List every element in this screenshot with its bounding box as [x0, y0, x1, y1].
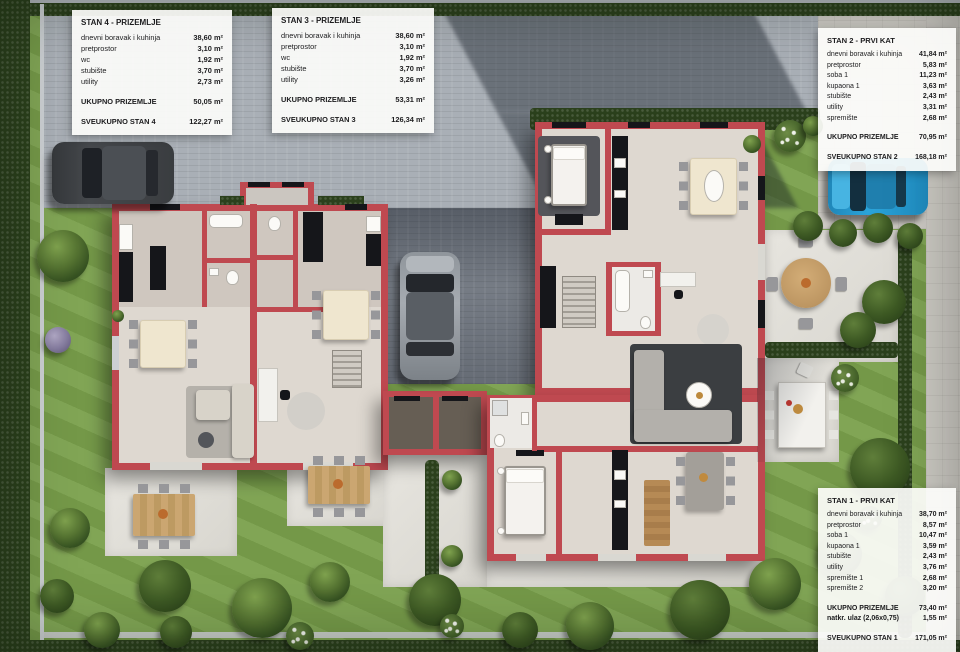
- fruit-bowl: [333, 479, 343, 489]
- row-label: wc: [81, 54, 90, 65]
- kitchen-counter: [119, 252, 133, 302]
- hedge-left: [0, 0, 30, 652]
- stairs: [562, 276, 596, 328]
- chair: [799, 318, 813, 329]
- row-label: stubište: [81, 65, 106, 76]
- decor-bowl: [696, 392, 703, 399]
- row-spacer: [81, 87, 223, 96]
- row-value: 3,70 m²: [400, 63, 425, 74]
- panel-title: STAN 3 - PRIZEMLJE: [281, 16, 425, 25]
- dining-table-stan3: [323, 290, 369, 340]
- toilet: [494, 434, 505, 447]
- fruit-bowl: [158, 509, 168, 519]
- row-label: stubište: [827, 552, 851, 563]
- row-spacer: [827, 595, 947, 604]
- chair: [836, 277, 847, 291]
- row-label: UKUPNO PRIZEMLJE: [281, 94, 357, 105]
- desk-chair: [674, 290, 683, 299]
- fence-line: [40, 4, 44, 652]
- window-lintel: [345, 204, 367, 210]
- panel-rows: dnevni boravak i kuhinja38,70 m²pretpros…: [827, 510, 947, 645]
- car-hood: [406, 256, 454, 272]
- panel-row: UKUPNO PRIZEMLJE53,31 m²: [281, 94, 425, 105]
- toilet: [226, 270, 239, 285]
- car-windshield: [82, 148, 102, 198]
- decor-flowers: [786, 400, 792, 406]
- panel-row: utility3,31 m²: [827, 103, 947, 114]
- row-label: utility: [827, 103, 843, 114]
- bush: [37, 230, 89, 282]
- panel-row: kupaona 13,63 m²: [827, 82, 947, 93]
- panel-row: SVEUKUPNO STAN 1171,05 m²: [827, 634, 947, 645]
- door-lintel: [248, 182, 270, 187]
- row-label: pretprostor: [281, 41, 317, 52]
- panel-row: utility3,26 m²: [281, 74, 425, 85]
- panel-row: dnevni boravak i kuhinja38,60 m²: [281, 30, 425, 41]
- panel-row: UKUPNO PRIZEMLJE73,40 m²: [827, 604, 947, 615]
- stove: [614, 500, 626, 508]
- flower-bush: [774, 120, 806, 152]
- sink: [614, 470, 626, 480]
- stove: [614, 190, 626, 198]
- door-lintel: [282, 182, 304, 187]
- row-label: spremište 1: [827, 574, 863, 585]
- row-label: wc: [281, 52, 290, 63]
- row-spacer: [81, 107, 223, 116]
- row-value: 11,23 m²: [919, 71, 947, 82]
- row-value: 3,31 m²: [923, 103, 947, 114]
- sofa: [232, 384, 254, 458]
- row-spacer: [827, 144, 947, 153]
- row-value: 3,76 m²: [923, 563, 947, 574]
- window-lintel: [700, 122, 728, 128]
- row-value: 3,20 m²: [923, 584, 947, 595]
- toilet: [640, 316, 651, 329]
- row-value: 3,63 m²: [923, 82, 947, 93]
- decor-bowl: [801, 278, 811, 288]
- bush: [840, 312, 876, 348]
- window-sill: [112, 336, 119, 370]
- row-value: 2,43 m²: [923, 92, 947, 103]
- row-label: dnevni boravak i kuhinja: [281, 30, 360, 41]
- panel-row: SVEUKUPNO STAN 3126,34 m²: [281, 114, 425, 125]
- round-rug: [697, 314, 729, 346]
- window-lintel: [628, 122, 650, 128]
- car-windshield: [406, 274, 454, 292]
- houseplant: [112, 310, 124, 322]
- terrace-stan1-south: [487, 561, 765, 587]
- kitchen-counter: [612, 136, 628, 230]
- sink: [209, 268, 219, 276]
- kitchen-counter: [366, 234, 381, 266]
- pouf: [198, 432, 214, 448]
- window-lintel: [150, 204, 180, 210]
- row-label: kupaona 1: [827, 542, 860, 553]
- threshold: [688, 554, 726, 561]
- tree: [670, 580, 730, 640]
- kitchen-island: [644, 480, 670, 546]
- chair-row: [138, 540, 190, 549]
- panel-row: spremište2,68 m²: [827, 114, 947, 125]
- interior-wall: [556, 450, 562, 558]
- nightstand: [544, 145, 552, 153]
- row-label: stubište: [827, 92, 851, 103]
- row-value: 5,83 m²: [923, 61, 947, 72]
- row-label: UKUPNO PRIZEMLJE: [81, 96, 157, 107]
- hedge-patio-south: [765, 342, 898, 358]
- bed-bench: [555, 214, 583, 225]
- kitchen-island: [150, 246, 166, 290]
- sofa-chaise: [196, 390, 230, 420]
- row-label: pretprostor: [827, 61, 861, 72]
- panel-row: pretprostor3,10 m²: [281, 41, 425, 52]
- chair-column: [312, 291, 321, 339]
- row-label: utility: [81, 76, 98, 87]
- chair: [767, 277, 778, 291]
- panel-row: pretprostor8,57 m²: [827, 521, 947, 532]
- interior-wall: [202, 258, 255, 263]
- row-value: 50,05 m²: [193, 96, 223, 107]
- car-rear-window: [896, 166, 906, 207]
- row-value: 38,60 m²: [193, 32, 223, 43]
- row-value: 1,92 m²: [198, 54, 223, 65]
- interior-wall: [612, 331, 660, 336]
- row-label: kupaona 1: [827, 82, 860, 93]
- panel-row: stubište2,43 m²: [827, 92, 947, 103]
- bush: [50, 508, 90, 548]
- panel-title: STAN 4 - PRIZEMLJE: [81, 18, 223, 27]
- chair-column: [188, 320, 197, 368]
- row-label: stubište: [281, 63, 306, 74]
- panel-rows: dnevni boravak i kuhinja38,60 m²pretpros…: [81, 32, 223, 127]
- row-label: pretprostor: [81, 43, 117, 54]
- panel-row: pretprostor3,10 m²: [81, 43, 223, 54]
- panel-rows: dnevni boravak i kuhinja41,84 m²pretpros…: [827, 50, 947, 163]
- row-label: natkr. ulaz (2,06x0,75): [827, 614, 899, 625]
- sink: [521, 412, 529, 425]
- stove: [366, 216, 381, 232]
- row-label: utility: [281, 74, 298, 85]
- car-roof: [102, 146, 146, 200]
- panel-rows: dnevni boravak i kuhinja38,60 m²pretpros…: [281, 30, 425, 125]
- row-label: dnevni boravak i kuhinja: [81, 32, 160, 43]
- nightstand: [497, 467, 505, 475]
- panel-row: UKUPNO PRIZEMLJE70,95 m²: [827, 133, 947, 144]
- pillows: [553, 147, 585, 160]
- desk: [660, 272, 696, 287]
- row-value: 168,18 m²: [915, 153, 947, 164]
- panel-title: STAN 2 - PRVI KAT: [827, 36, 947, 45]
- panel-row: natkr. ulaz (2,06x0,75)1,55 m²: [827, 614, 947, 625]
- shower: [492, 400, 508, 416]
- bush: [566, 602, 614, 650]
- bush: [749, 558, 801, 610]
- row-value: 1,92 m²: [400, 52, 425, 63]
- chair-column: [371, 291, 380, 339]
- decor-bowl: [699, 473, 708, 482]
- panel-row: UKUPNO PRIZEMLJE50,05 m²: [81, 96, 223, 107]
- bathtub: [209, 214, 243, 228]
- row-label: SVEUKUPNO STAN 3: [281, 114, 356, 125]
- bush: [441, 545, 463, 567]
- door-lintel: [394, 396, 420, 401]
- window-lintel: [758, 300, 765, 328]
- row-value: 10,47 m²: [919, 531, 947, 542]
- row-label: dnevni boravak i kuhinja: [827, 50, 902, 61]
- row-value: 38,60 m²: [395, 30, 425, 41]
- bathtub: [615, 270, 630, 312]
- row-spacer: [281, 85, 425, 94]
- desk: [258, 368, 278, 422]
- window-lintel: [758, 176, 765, 200]
- panel-row: utility3,76 m²: [827, 563, 947, 574]
- chair-column: [129, 320, 138, 368]
- row-spacer: [827, 124, 947, 133]
- decor-bowl: [793, 404, 803, 414]
- panel-row: wc1,92 m²: [281, 52, 425, 63]
- sink: [643, 270, 653, 278]
- threshold: [598, 554, 636, 561]
- site-plan-scene: STAN 4 - PRIZEMLJE dnevni boravak i kuhi…: [0, 0, 960, 652]
- row-value: 53,31 m²: [395, 94, 425, 105]
- sofa: [634, 410, 732, 442]
- row-label: soba 1: [827, 531, 848, 542]
- desk-chair: [280, 390, 290, 400]
- panel-row: stubište3,70 m²: [281, 63, 425, 74]
- row-spacer: [827, 625, 947, 634]
- nightstand: [497, 527, 505, 535]
- row-label: pretprostor: [827, 521, 861, 532]
- row-value: 3,10 m²: [198, 43, 223, 54]
- fridge: [119, 224, 133, 250]
- wardrobe: [303, 212, 323, 262]
- bush: [160, 616, 192, 648]
- row-label: SVEUKUPNO STAN 2: [827, 153, 898, 164]
- lavender-bush: [45, 327, 71, 353]
- row-value: 3,26 m²: [400, 74, 425, 85]
- row-label: SVEUKUPNO STAN 1: [827, 634, 898, 645]
- area-panel-stan-1: STAN 1 - PRVI KAT dnevni boravak i kuhin…: [818, 488, 956, 652]
- bush: [897, 223, 923, 249]
- bush: [793, 211, 823, 241]
- row-spacer: [281, 105, 425, 114]
- row-value: 3,59 m²: [923, 542, 947, 553]
- interior-wall: [535, 446, 765, 452]
- panel-row: dnevni boravak i kuhinja38,60 m²: [81, 32, 223, 43]
- panel-row: SVEUKUPNO STAN 2168,18 m²: [827, 153, 947, 164]
- row-value: 3,10 m²: [400, 41, 425, 52]
- interior-wall: [535, 229, 611, 235]
- row-value: 2,68 m²: [923, 114, 947, 125]
- chair-column: [676, 457, 685, 505]
- chair-column: [739, 162, 748, 210]
- bush: [310, 562, 350, 602]
- panel-row: stubište3,70 m²: [81, 65, 223, 76]
- wardrobe: [540, 266, 556, 328]
- chair-column: [726, 457, 735, 505]
- row-value: 73,40 m²: [919, 604, 947, 615]
- row-value: 8,57 m²: [923, 521, 947, 532]
- flower-bush: [440, 614, 464, 638]
- round-rug: [287, 392, 325, 430]
- panel-row: soba 110,47 m²: [827, 531, 947, 542]
- row-value: 70,95 m²: [919, 133, 947, 144]
- interior-wall: [257, 255, 298, 260]
- row-value: 122,27 m²: [189, 116, 223, 127]
- bush: [84, 612, 120, 648]
- houseplant: [743, 135, 761, 153]
- sink: [614, 158, 626, 168]
- chair-row: [138, 484, 190, 493]
- tree: [232, 578, 292, 638]
- table-runner: [704, 170, 724, 202]
- area-panel-stan-2: STAN 2 - PRVI KAT dnevni boravak i kuhin…: [818, 28, 956, 171]
- hedge-strip-center: [425, 460, 439, 586]
- dining-table-stan4: [140, 320, 186, 368]
- window-lintel: [552, 122, 586, 128]
- panel-row: spremište 23,20 m²: [827, 584, 947, 595]
- stairs: [332, 350, 362, 388]
- panel-row: dnevni boravak i kuhinja38,70 m²: [827, 510, 947, 521]
- door-lintel: [442, 396, 468, 401]
- panel-row: pretprostor5,83 m²: [827, 61, 947, 72]
- row-value: 126,34 m²: [391, 114, 425, 125]
- hedge-bottom: [0, 640, 960, 652]
- row-value: 3,70 m²: [198, 65, 223, 76]
- row-value: 41,84 m²: [919, 50, 947, 61]
- panel-row: dnevni boravak i kuhinja41,84 m²: [827, 50, 947, 61]
- row-label: spremište 2: [827, 584, 863, 595]
- bush: [502, 612, 538, 648]
- car-rear-window: [406, 342, 454, 356]
- flower-bush: [286, 622, 314, 650]
- row-label: UKUPNO PRIZEMLJE: [827, 604, 899, 615]
- row-value: 1,55 m²: [923, 614, 947, 625]
- nightstand: [544, 196, 552, 204]
- panel-row: kupaona 13,59 m²: [827, 542, 947, 553]
- row-value: 2,68 m²: [923, 574, 947, 585]
- area-panel-stan-4: STAN 4 - PRIZEMLJE dnevni boravak i kuhi…: [72, 10, 232, 135]
- bush: [139, 560, 191, 612]
- interior-wall: [532, 395, 537, 451]
- panel-title: STAN 1 - PRVI KAT: [827, 496, 947, 505]
- door-lintel: [516, 450, 544, 456]
- row-label: soba 1: [827, 71, 848, 82]
- threshold: [150, 462, 202, 470]
- chair-row: [313, 508, 365, 517]
- threshold: [516, 554, 546, 561]
- building-shadow: [440, 5, 807, 112]
- panel-row: stubište2,43 m²: [827, 552, 947, 563]
- chair-column: [679, 162, 688, 210]
- car-roof: [406, 292, 454, 340]
- row-label: utility: [827, 563, 843, 574]
- row-label: UKUPNO PRIZEMLJE: [827, 133, 899, 144]
- bush: [829, 219, 857, 247]
- toilet: [268, 216, 281, 231]
- row-value: 171,05 m²: [915, 634, 947, 645]
- pillows: [506, 469, 544, 483]
- row-label: dnevni boravak i kuhinja: [827, 510, 902, 521]
- planter: [220, 196, 244, 205]
- panel-row: wc1,92 m²: [81, 54, 223, 65]
- patio-door-threshold: [758, 244, 765, 280]
- panel-row: soba 111,23 m²: [827, 71, 947, 82]
- interior-wall: [605, 129, 611, 233]
- row-value: 38,70 m²: [919, 510, 947, 521]
- row-label: SVEUKUPNO STAN 4: [81, 116, 156, 127]
- panel-row: utility2,73 m²: [81, 76, 223, 87]
- bush: [40, 579, 74, 613]
- car-rear-window: [146, 150, 158, 196]
- bush: [442, 470, 462, 490]
- row-value: 2,43 m²: [923, 552, 947, 563]
- row-value: 2,73 m²: [198, 76, 223, 87]
- area-panel-stan-3: STAN 3 - PRIZEMLJE dnevni boravak i kuhi…: [272, 8, 434, 133]
- interior-wall: [433, 391, 439, 455]
- panel-row: SVEUKUPNO STAN 4122,27 m²: [81, 116, 223, 127]
- flower-bush: [831, 364, 859, 392]
- chair-row: [313, 456, 365, 465]
- bush: [863, 213, 893, 243]
- panel-row: spremište 12,68 m²: [827, 574, 947, 585]
- row-label: spremište: [827, 114, 857, 125]
